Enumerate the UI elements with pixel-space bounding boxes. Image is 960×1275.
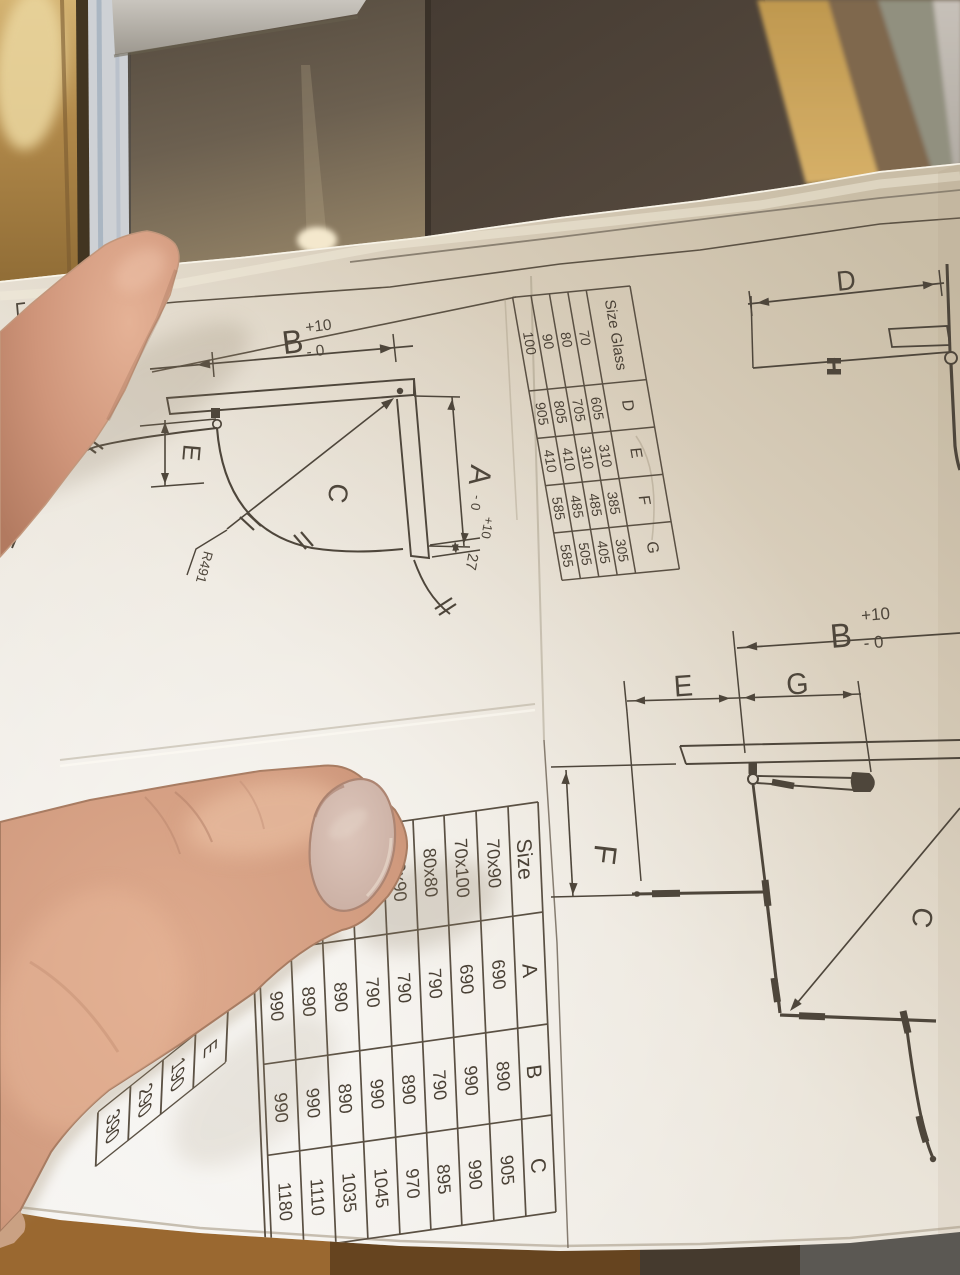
svg-text:G: G bbox=[785, 668, 809, 702]
svg-text:E: E bbox=[626, 447, 645, 459]
svg-text:1045: 1045 bbox=[370, 1167, 392, 1210]
svg-text:990: 990 bbox=[465, 1158, 486, 1191]
svg-text:+10: +10 bbox=[860, 604, 890, 625]
svg-text:990: 990 bbox=[461, 1064, 482, 1097]
svg-text:+10: +10 bbox=[304, 316, 333, 336]
svg-text:1035: 1035 bbox=[338, 1171, 360, 1214]
svg-text:890: 890 bbox=[398, 1073, 419, 1106]
svg-text:E: E bbox=[176, 443, 205, 462]
svg-text:890: 890 bbox=[335, 1082, 356, 1115]
svg-text:890: 890 bbox=[298, 985, 319, 1018]
svg-text:80: 80 bbox=[557, 331, 576, 348]
svg-text:895: 895 bbox=[433, 1163, 454, 1196]
svg-text:890: 890 bbox=[493, 1060, 514, 1093]
svg-text:905: 905 bbox=[497, 1154, 518, 1187]
svg-text:790: 790 bbox=[429, 1069, 450, 1102]
svg-text:C: C bbox=[526, 1157, 550, 1175]
svg-text:- 0: - 0 bbox=[468, 494, 485, 512]
svg-text:D: D bbox=[835, 264, 857, 298]
svg-text:C: C bbox=[322, 482, 354, 505]
svg-text:A: A bbox=[462, 463, 497, 487]
svg-text:D: D bbox=[618, 399, 637, 412]
svg-text:970: 970 bbox=[402, 1167, 423, 1200]
svg-text:70: 70 bbox=[576, 330, 595, 347]
svg-text:90: 90 bbox=[539, 333, 558, 350]
svg-text:B: B bbox=[829, 616, 854, 656]
svg-text:690: 690 bbox=[488, 958, 509, 991]
svg-text:990: 990 bbox=[367, 1078, 388, 1111]
svg-text:B: B bbox=[280, 322, 305, 361]
svg-text:E: E bbox=[673, 670, 694, 704]
svg-text:790: 790 bbox=[362, 976, 383, 1009]
svg-text:690: 690 bbox=[456, 963, 477, 996]
svg-text:1110: 1110 bbox=[306, 1177, 328, 1217]
svg-text:G: G bbox=[643, 541, 662, 555]
svg-text:27: 27 bbox=[462, 552, 482, 571]
svg-text:790: 790 bbox=[425, 967, 446, 1000]
svg-text:890: 890 bbox=[330, 981, 351, 1014]
svg-text:790: 790 bbox=[394, 972, 415, 1005]
svg-text:Size: Size bbox=[512, 837, 537, 881]
svg-text:- 0: - 0 bbox=[305, 342, 325, 361]
svg-text:F: F bbox=[634, 495, 653, 506]
svg-text:1180: 1180 bbox=[274, 1181, 296, 1222]
svg-text:- 0: - 0 bbox=[863, 632, 884, 653]
